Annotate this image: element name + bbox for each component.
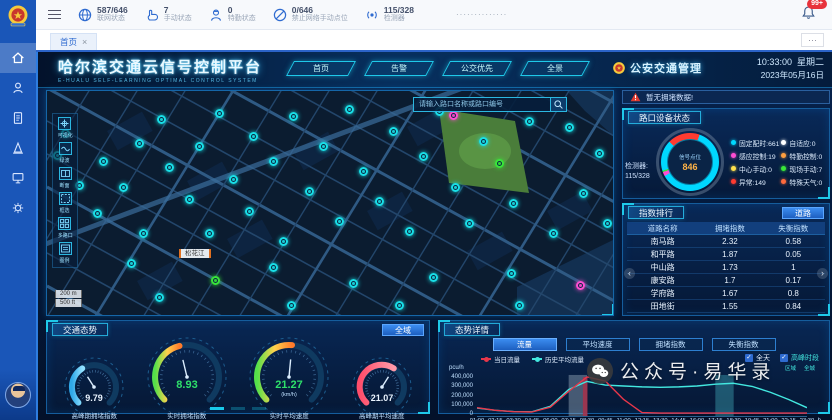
police-badge-logo — [6, 4, 30, 33]
table-cell: 1.55 — [698, 300, 761, 313]
sidebar-item-settings[interactable] — [0, 193, 36, 223]
globe-icon — [77, 7, 93, 23]
map-marker-cyan[interactable] — [305, 187, 314, 196]
map-marker-cyan[interactable] — [349, 279, 358, 288]
map-marker-cyan[interactable] — [359, 167, 368, 176]
map-marker-cyan[interactable] — [389, 127, 398, 136]
legend-label: 自适应:0 — [789, 138, 815, 148]
column-header: 失衡指数 — [762, 222, 825, 235]
banner-nav-label: 告警 — [391, 63, 407, 74]
detail-tab-2[interactable]: 拥堵指数 — [639, 338, 703, 351]
column-header: 拥堵指数 — [698, 222, 761, 235]
device-panel-title: 路口设备状态 — [628, 111, 701, 124]
banner-nav-0[interactable]: 首页 — [286, 61, 356, 76]
legend-line — [532, 358, 542, 360]
map-marker-cyan[interactable] — [395, 301, 404, 310]
map-marker-cyan[interactable] — [509, 199, 518, 208]
map-marker-cyan[interactable] — [603, 219, 612, 228]
status-stat-2[interactable]: 0特勤状态 — [208, 6, 256, 24]
legend-item: 自适应:0 — [781, 138, 827, 148]
index-ranking-panel: 指数排行 道路 道路名称拥堵指数失衡指数南马路2.320.58和平路1.870.… — [622, 203, 830, 316]
legend-item: 固定配时:661 — [731, 138, 779, 148]
map-marker-cyan[interactable] — [465, 219, 474, 228]
table-cell: 1.7 — [698, 274, 761, 287]
ranking-table: 道路名称拥堵指数失衡指数南马路2.320.58和平路1.870.05中山路1.7… — [627, 222, 825, 313]
table-cell: 0.17 — [762, 274, 825, 287]
map-marker-cyan[interactable] — [579, 189, 588, 198]
home-icon — [10, 50, 26, 66]
banner-nav-label: 首页 — [313, 63, 329, 74]
watermark: 公众号·易华录 — [587, 357, 775, 384]
platform-title-block: 哈尔滨交通云信号控制平台 E-HUALU SELF-LEARNING OPTIM… — [58, 56, 262, 84]
legend-dot — [731, 166, 736, 171]
officer-icon — [208, 7, 224, 23]
clock-date: 2023年05月16日 — [757, 69, 824, 81]
scale-feet: 500 ft — [55, 299, 82, 307]
gauge-3: 21.07高峰期平均速度 — [351, 356, 413, 420]
menu-toggle-icon[interactable] — [48, 10, 61, 19]
table-cell: 康安路 — [627, 274, 698, 287]
legend-label: 历史平均流量 — [545, 354, 584, 364]
gear-icon — [10, 200, 26, 216]
stat-text: 587/646联网状态 — [97, 6, 128, 24]
map-marker-cyan[interactable] — [135, 139, 144, 148]
stat-value: 115/328 — [384, 6, 414, 16]
tab-home[interactable]: 首页 × — [50, 33, 97, 50]
map-marker-cyan[interactable] — [139, 229, 148, 238]
map-tool-label: 可视化 — [58, 131, 73, 138]
gauge-value: 9.79 — [85, 393, 103, 403]
legend-dot — [731, 153, 736, 158]
hand-icon — [144, 7, 160, 23]
search-input[interactable] — [413, 97, 551, 112]
legend-dot — [731, 140, 736, 145]
alert-text: 暂无拥堵数据! — [646, 92, 693, 103]
gauge-value: 21.07 — [370, 393, 393, 403]
page-dash-active[interactable] — [210, 407, 224, 410]
legend-label: 特勤控制:0 — [789, 151, 822, 161]
tab-close-icon[interactable]: × — [82, 37, 87, 47]
legend-item: 感应控制:19 — [731, 151, 779, 161]
gauge-label: 实时平均速度 — [270, 410, 309, 420]
map-marker-cyan[interactable] — [287, 301, 296, 310]
banner-nav-label: 公交优先 — [461, 63, 493, 74]
map-tool-label: 图例 — [60, 256, 70, 263]
legend-item: 特殊天气:0 — [781, 177, 827, 187]
sidebar-item-home[interactable] — [0, 43, 36, 73]
gauge-pagination — [210, 407, 266, 410]
donut-center-value: 846 — [682, 162, 697, 172]
sidebar-item-users[interactable] — [0, 73, 36, 103]
legend-label: 特殊天气:0 — [789, 177, 822, 187]
donut-center-label: 信号点位 — [679, 153, 701, 161]
map-marker-green[interactable] — [495, 159, 504, 168]
donut-center: 信号点位 846 — [667, 139, 713, 185]
stat-text: 7手动状态 — [164, 6, 192, 24]
legend-item: 特勤控制:0 — [781, 151, 827, 161]
sidebar-item-devices[interactable] — [0, 133, 36, 163]
tab-more-button[interactable]: ··· — [801, 33, 824, 47]
boxselect-icon — [59, 192, 72, 205]
user-icon — [10, 80, 26, 96]
map-marker-cyan[interactable] — [229, 175, 238, 184]
table-cell: 2.32 — [698, 235, 761, 248]
table-cell: 1.87 — [698, 248, 761, 261]
table-cell: 0.84 — [762, 300, 825, 313]
main-area: 587/646联网状态7手动状态0特勤状态0/646禁止网络手动点位115/32… — [36, 0, 832, 420]
y-tick: 0 — [443, 411, 473, 417]
map-marker-cyan[interactable] — [405, 227, 414, 236]
platform-title: 哈尔滨交通云信号控制平台 — [58, 56, 262, 77]
gauge-value: 8.93 — [176, 379, 197, 391]
legend-label: 中心手动:0 — [739, 164, 772, 174]
detector-icon — [364, 7, 380, 23]
crosshair-icon — [58, 117, 71, 130]
user-avatar[interactable] — [5, 382, 31, 408]
situation-detail-panel: 态势详情 流量平均速度拥堵指数失衡指数 当日流量历史平均流量 ✓全天✓高峰时段 … — [438, 320, 830, 414]
table-row[interactable]: 学府路1.670.8 — [627, 287, 825, 300]
table-cell: 1 — [762, 261, 825, 274]
map-marker-cyan[interactable] — [269, 157, 278, 166]
legend-dot — [781, 166, 786, 171]
map-marker-cyan[interactable] — [375, 197, 384, 206]
map-tool-label: 框选 — [60, 206, 70, 213]
status-stat-0[interactable]: 587/646联网状态 — [77, 6, 128, 24]
page-dash[interactable] — [252, 407, 266, 410]
stat-value: 0 — [228, 6, 256, 16]
dashboard: 哈尔滨交通云信号控制平台 E-HUALU SELF-LEARNING OPTIM… — [36, 52, 832, 420]
status-stats: 587/646联网状态7手动状态0特勤状态0/646禁止网络手动点位115/32… — [77, 6, 430, 24]
traffic-panel-title: 交通态势 — [52, 323, 108, 336]
table-row[interactable]: 康安路1.70.17 — [627, 274, 825, 287]
warning-icon — [630, 92, 641, 102]
table-cell: 和平路 — [627, 248, 698, 261]
map-scale: 200 m 500 ft — [55, 289, 82, 307]
status-stat-1[interactable]: 7手动状态 — [144, 6, 192, 24]
detail-tab-0[interactable]: 流量 — [493, 338, 557, 351]
y-axis-unit: pcu/h — [449, 365, 464, 371]
table-cell: 南马路 — [627, 235, 698, 248]
map-marker-cyan[interactable] — [319, 142, 328, 151]
map-marker-cyan[interactable] — [185, 195, 194, 204]
city-map[interactable]: 可视化绿波断面框选多路口图例 200 m 500 ft 松花江 — [46, 90, 614, 316]
legend-icon — [59, 242, 72, 255]
map-marker-green[interactable] — [211, 276, 220, 285]
banner-nav-3[interactable]: 全景 — [520, 61, 590, 76]
map-marker-cyan[interactable] — [279, 237, 288, 246]
stat-label: 禁止网络手动点位 — [292, 15, 348, 23]
org-name: 公安交通管理 — [630, 60, 702, 76]
traffic-cone-icon — [10, 140, 26, 156]
column-header: 道路名称 — [627, 222, 698, 235]
gauge-dial: 21.07 — [351, 356, 413, 412]
section-icon — [59, 167, 72, 180]
detail-panel-title: 态势详情 — [444, 323, 500, 336]
clock-weekday: 星期二 — [797, 57, 824, 67]
page-dash[interactable] — [231, 407, 245, 410]
map-marker-cyan[interactable] — [195, 142, 204, 151]
map-marker-pink[interactable] — [449, 111, 458, 120]
legend-label: 现场手动:7 — [789, 164, 822, 174]
y-tick: 100,000 — [443, 402, 473, 408]
monitor-icon — [10, 170, 26, 186]
legend-dot — [781, 179, 786, 184]
map-tool-label: 多路口 — [58, 231, 73, 238]
table-cell: 中山路 — [627, 261, 698, 274]
chart-legend-item: 当日流量 — [481, 354, 520, 364]
ranking-filter-button[interactable]: 道路 — [782, 207, 824, 219]
gauge-label: 实时拥堵指数 — [167, 410, 206, 420]
chart-legend: 当日流量历史平均流量 — [481, 354, 584, 364]
filter-checkbox-1[interactable]: ✓高峰时段 — [780, 353, 819, 363]
table-cell: 学府路 — [627, 287, 698, 300]
map-marker-cyan[interactable] — [127, 259, 136, 268]
legend-line — [481, 358, 491, 360]
chart-legend-item: 历史平均流量 — [532, 354, 584, 364]
stat-value: 7 — [164, 6, 192, 16]
traffic-situation-panel: 交通态势 全域 9.79高峰期拥堵指数8.93实时拥堵指数21.27(km/h)… — [46, 320, 430, 414]
y-tick: 300,000 — [443, 383, 473, 389]
device-donut-block: 检测器: 115/328 信号点位 846 — [623, 126, 727, 198]
gauge-dial: 9.79 — [63, 356, 125, 412]
checkbox-label: 高峰时段 — [791, 353, 819, 363]
stat-text: 0/646禁止网络手动点位 — [292, 6, 348, 24]
table-row[interactable]: 和平路1.870.05 — [627, 248, 825, 261]
map-marker-cyan[interactable] — [289, 112, 298, 121]
legend-dot — [781, 153, 786, 158]
device-status-panel: 路口设备状态 检测器: 115/328 信号点位 8 — [622, 108, 830, 199]
stat-text: 115/328检测器 — [384, 6, 414, 24]
table-cell: 0.05 — [762, 248, 825, 261]
stat-value: 0/646 — [292, 6, 348, 16]
banner: 哈尔滨交通云信号控制平台 E-HUALU SELF-LEARNING OPTIM… — [38, 52, 832, 88]
legend-item: 中心手动:0 — [731, 164, 779, 174]
map-marker-cyan[interactable] — [157, 115, 166, 124]
org-chip: 公安交通管理 — [612, 60, 702, 76]
y-tick: 400,000 — [443, 374, 473, 380]
detail-tab-1[interactable]: 平均速度 — [566, 338, 630, 351]
map-tool-2[interactable]: 断面 — [59, 167, 72, 189]
map-marker-cyan[interactable] — [119, 183, 128, 192]
table-row[interactable]: 南马路2.320.58 — [627, 235, 825, 248]
map-marker-cyan[interactable] — [515, 301, 524, 310]
multi-junction-icon — [58, 217, 71, 230]
table-header-row: 道路名称拥堵指数失衡指数 — [627, 222, 825, 235]
detector-count: 检测器: 115/328 — [625, 162, 650, 182]
checkbox-icon[interactable]: ✓ — [780, 354, 788, 362]
place-label: 松花江 — [179, 249, 211, 258]
map-marker-cyan[interactable] — [419, 152, 428, 161]
table-cell: 0.58 — [762, 235, 825, 248]
gauge-dial: 8.93 — [146, 336, 228, 412]
map-tool-1[interactable]: 绿波 — [59, 142, 72, 164]
gauge-dial: 21.27(km/h) — [248, 336, 330, 412]
legend-item: 异常:149 — [731, 177, 779, 187]
map-marker-cyan[interactable] — [451, 183, 460, 192]
notification-badge: 99+ — [807, 0, 827, 9]
map-marker-cyan[interactable] — [345, 105, 354, 114]
map-tool-label: 绿波 — [60, 156, 70, 163]
table-cell: 田地街 — [627, 300, 698, 313]
banner-nav-2[interactable]: 公交优先 — [442, 61, 512, 76]
detail-tab-3[interactable]: 失衡指数 — [712, 338, 776, 351]
detail-tabs: 流量平均速度拥堵指数失衡指数 — [439, 338, 829, 351]
gauge-label: 高峰期拥堵指数 — [72, 410, 118, 420]
platform-subtitle: E-HUALU SELF-LEARNING OPTIMAL CONTROL SY… — [58, 78, 262, 84]
table-cell: 1.73 — [698, 261, 761, 274]
legend-dot — [781, 140, 786, 145]
notifications[interactable]: 99+ — [801, 5, 816, 25]
banner-nav: 首页告警公交优先全景 — [290, 61, 586, 76]
sidebar — [0, 0, 36, 420]
map-tool-4[interactable]: 多路口 — [57, 217, 74, 239]
table-cell: 1.67 — [698, 287, 761, 300]
gauge-label: 高峰期平均速度 — [359, 410, 405, 420]
stat-label: 联网状态 — [97, 15, 128, 23]
map-marker-cyan[interactable] — [249, 132, 258, 141]
legend-label: 当日流量 — [494, 354, 520, 364]
congestion-alert: 暂无拥堵数据! — [622, 90, 830, 104]
map-tool-label: 断面 — [60, 181, 70, 188]
ban-icon — [272, 7, 288, 23]
map-marker-cyan[interactable] — [99, 157, 108, 166]
device-legend: 固定配时:661自适应:0感应控制:19特勤控制:0中心手动:0现场手动:7异常… — [727, 126, 829, 198]
stat-value: 587/646 — [97, 6, 128, 16]
map-tool-3[interactable]: 框选 — [59, 192, 72, 214]
map-marker-cyan[interactable] — [429, 273, 438, 282]
map-marker-cyan[interactable] — [165, 163, 174, 172]
overflow-dots: ·············· — [456, 10, 507, 19]
stat-label: 手动状态 — [164, 15, 192, 23]
map-marker-cyan[interactable] — [549, 229, 558, 238]
ranking-panel-title: 指数排行 — [628, 206, 684, 219]
stat-text: 0特勤状态 — [228, 6, 256, 24]
status-stat-4[interactable]: 115/328检测器 — [364, 6, 414, 24]
map-marker-cyan[interactable] — [507, 269, 516, 278]
gauge-unit: (km/h) — [281, 392, 297, 398]
map-marker-cyan[interactable] — [479, 137, 488, 146]
clock-time: 10:33:00 — [757, 57, 792, 67]
gauge-value: 21.27 — [275, 379, 303, 391]
legend-dot — [731, 179, 736, 184]
search-icon — [553, 99, 564, 110]
stat-label: 检测器 — [384, 15, 414, 23]
banner-nav-label: 全景 — [547, 63, 563, 74]
map-marker-cyan[interactable] — [245, 207, 254, 216]
legend-label: 异常:149 — [739, 177, 766, 187]
sidebar-nav — [0, 43, 36, 223]
map-toolbar: 可视化绿波断面框选多路口图例 — [52, 113, 78, 268]
right-column: 暂无拥堵数据! 路口设备状态 检测器: 115/328 — [622, 90, 830, 316]
map-marker-cyan[interactable] — [565, 123, 574, 132]
top-status-bar: 587/646联网状态7手动状态0特勤状态0/646禁止网络手动点位115/32… — [36, 0, 832, 30]
map-marker-cyan[interactable] — [525, 117, 534, 126]
table-row[interactable]: 田地街1.550.84 — [627, 300, 825, 313]
map-marker-cyan[interactable] — [269, 263, 278, 272]
map-marker-cyan[interactable] — [595, 149, 604, 158]
map-marker-cyan[interactable] — [93, 209, 102, 218]
map-search — [413, 97, 567, 112]
watermark-text: 公众号·易华录 — [620, 357, 775, 384]
tab-home-label: 首页 — [60, 36, 77, 48]
map-marker-cyan[interactable] — [215, 109, 224, 118]
document-icon — [10, 110, 26, 126]
greenwave-icon — [59, 142, 72, 155]
map-marker-cyan[interactable] — [155, 293, 164, 302]
map-marker-cyan[interactable] — [335, 217, 344, 226]
map-tool-5[interactable]: 图例 — [59, 242, 72, 264]
scale-meters: 200 m — [55, 290, 82, 298]
stat-label: 特勤状态 — [228, 15, 256, 23]
ranking-next-arrow[interactable]: › — [817, 268, 828, 279]
search-button[interactable] — [551, 97, 567, 112]
traffic-scope-button[interactable]: 全域 — [382, 324, 424, 336]
table-cell: 0.8 — [762, 287, 825, 300]
map-tool-0[interactable]: 可视化 — [57, 117, 74, 139]
legend-label: 固定配时:661 — [739, 138, 779, 148]
sidebar-item-documents[interactable] — [0, 103, 36, 133]
gauge-0: 9.79高峰期拥堵指数 — [63, 356, 125, 420]
sidebar-item-monitor[interactable] — [0, 163, 36, 193]
page-tab-bar: 首页 × ··· — [36, 30, 832, 52]
legend-item: 现场手动:7 — [781, 164, 827, 174]
wechat-icon — [587, 358, 613, 384]
map-marker-cyan[interactable] — [205, 229, 214, 238]
clock: 10:33:00 星期二 2023年05月16日 — [757, 56, 824, 81]
org-badge-icon — [612, 61, 626, 75]
traffic-control-platform: 587/646联网状态7手动状态0特勤状态0/646禁止网络手动点位115/32… — [0, 0, 832, 420]
table-row[interactable]: 中山路1.731 — [627, 261, 825, 274]
map-marker-pink[interactable] — [576, 281, 585, 290]
status-stat-3[interactable]: 0/646禁止网络手动点位 — [272, 6, 348, 24]
y-tick: 200,000 — [443, 393, 473, 399]
banner-nav-1[interactable]: 告警 — [364, 61, 434, 76]
legend-label: 感应控制:19 — [739, 151, 776, 161]
